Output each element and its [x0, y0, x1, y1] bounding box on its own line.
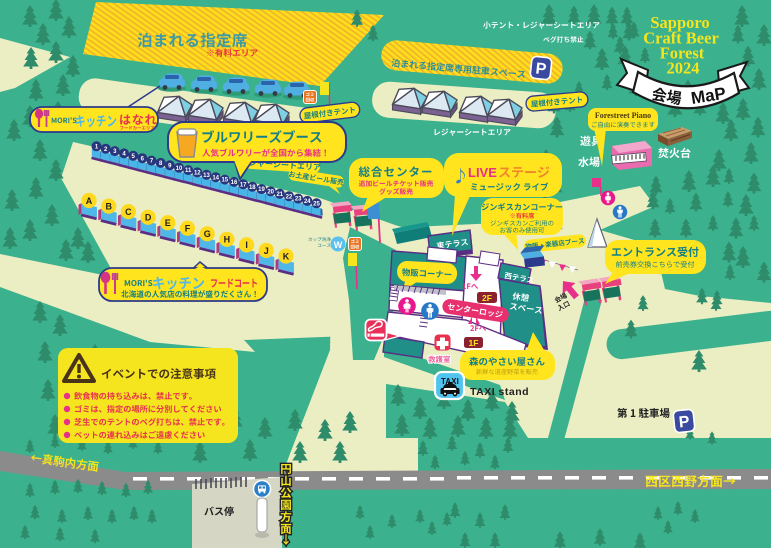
svg-text:23: 23: [295, 197, 302, 203]
svg-text:17: 17: [240, 182, 247, 188]
svg-text:21: 21: [276, 192, 283, 198]
svg-text:K: K: [283, 251, 290, 261]
svg-text:F: F: [185, 224, 191, 234]
svg-text:24: 24: [304, 199, 311, 205]
svg-text:D: D: [145, 213, 152, 223]
svg-text:15: 15: [221, 178, 228, 184]
svg-text:25: 25: [313, 201, 320, 207]
svg-text:20: 20: [267, 190, 274, 196]
svg-text:B: B: [105, 201, 112, 211]
svg-text:C: C: [125, 207, 132, 217]
svg-text:16: 16: [231, 180, 238, 186]
svg-text:19: 19: [258, 187, 265, 193]
svg-text:13: 13: [203, 173, 210, 179]
svg-text:22: 22: [286, 194, 293, 200]
svg-text:W: W: [334, 240, 343, 250]
svg-text:P: P: [535, 60, 548, 78]
svg-text:12: 12: [194, 171, 201, 177]
svg-text:I: I: [245, 240, 248, 250]
svg-text:LIVE: LIVE: [468, 165, 497, 180]
svg-text:10: 10: [176, 166, 183, 172]
svg-text:18: 18: [249, 185, 256, 191]
svg-text:E: E: [165, 218, 171, 228]
svg-text:J: J: [264, 246, 269, 256]
svg-text:P: P: [678, 413, 691, 431]
svg-text:A: A: [86, 196, 93, 206]
svg-text:11: 11: [185, 168, 192, 174]
svg-text:14: 14: [212, 175, 219, 181]
svg-text:Forestreet Piano: Forestreet Piano: [595, 111, 651, 120]
svg-text:2F: 2F: [482, 293, 492, 303]
svg-text:1F: 1F: [469, 338, 479, 348]
svg-text:2024: 2024: [667, 59, 700, 78]
svg-text:H: H: [224, 235, 231, 245]
svg-text:G: G: [204, 229, 211, 239]
svg-text:TAXI stand: TAXI stand: [470, 386, 529, 398]
